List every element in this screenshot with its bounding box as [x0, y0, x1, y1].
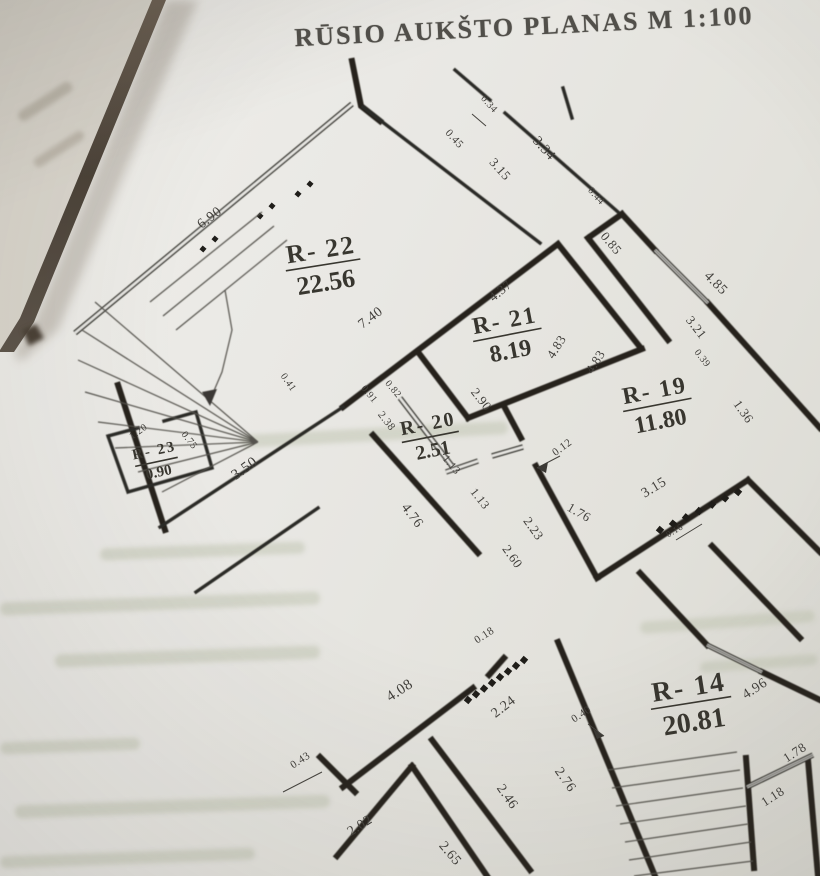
window-hatch-square [306, 180, 313, 187]
stair-walk-line [210, 290, 232, 400]
dimension-label: 4.08 [384, 676, 416, 705]
underlying-page [0, 0, 152, 350]
dimension-label: 4.83 [543, 332, 569, 361]
dimension-label: 2.76 [551, 765, 578, 795]
floor-plan-svg: 6.900.340.453.343.150.440.854.853.210.39… [0, 0, 820, 876]
window-hatch-square [294, 190, 301, 197]
dimension-label: 2.60 [499, 542, 525, 571]
dimension-label: 0.44 [585, 185, 606, 207]
window-hatch-square [504, 667, 512, 675]
dimension-label: 0.82 [382, 378, 403, 400]
winding-stair-treads [78, 212, 287, 492]
window-hatch-square [268, 202, 275, 209]
dimension-label: 4.85 [701, 269, 730, 298]
room-label-r21: R- 218.19 [468, 302, 547, 371]
dimension-label: 0.45 [443, 127, 466, 151]
dimension-label: 3.15 [486, 155, 514, 183]
dimension-label: 0.75 [179, 429, 200, 451]
window-hatch-square [480, 684, 488, 692]
room-number: R- 21 [470, 302, 539, 340]
room-label-r19: R- 1911.80 [618, 372, 697, 441]
dimension-label: 0.34 [478, 93, 499, 115]
dimension-label: 7.40 [356, 304, 386, 332]
room-area: 8.19 [487, 335, 533, 369]
dimension-label: 2.65 [435, 839, 464, 869]
dimension-label: 0.39 [692, 347, 713, 369]
room-label-r22: R- 2222.56 [281, 229, 365, 302]
page-edge [0, 0, 198, 362]
room-area: 20.81 [661, 702, 728, 742]
walk-line-arrowhead [202, 389, 217, 406]
dimension-label: 1.13 [468, 485, 493, 512]
window-hatch-square [512, 661, 520, 669]
dimension-label: 3.15 [639, 475, 669, 502]
window-hatch-square [211, 235, 218, 242]
dimension-label: 4.76 [398, 501, 426, 531]
window-hatch-square [488, 679, 496, 687]
window-hatch-square [199, 245, 206, 252]
dimension-lines [283, 114, 702, 792]
window-hatch-square [496, 673, 504, 681]
room-area: 22.56 [295, 263, 357, 301]
room-label-r14: R- 1420.81 [646, 666, 737, 744]
dimension-label: 4.96 [740, 676, 770, 703]
dimension-label: 0.18 [472, 625, 496, 647]
dimension-label: 1.36 [730, 397, 756, 426]
dimension-label: 2.23 [520, 514, 546, 543]
dimension-label: 2.24 [489, 693, 519, 721]
dimension-label: 2.46 [493, 782, 520, 812]
dimension-label: 3.21 [683, 313, 710, 342]
photographed-plan-page: 6.900.340.453.343.150.440.854.853.210.39… [0, 0, 820, 876]
bleed-text [0, 421, 818, 868]
dimension-label: 0.12 [550, 436, 574, 458]
room-area: 11.80 [632, 404, 689, 440]
dimension-label: 0.41 [278, 371, 298, 393]
dimension-label: 0.43 [288, 750, 312, 772]
window-hatch-square [520, 656, 528, 664]
structural-walls [118, 61, 820, 876]
dimension-label: 1.18 [758, 783, 787, 809]
